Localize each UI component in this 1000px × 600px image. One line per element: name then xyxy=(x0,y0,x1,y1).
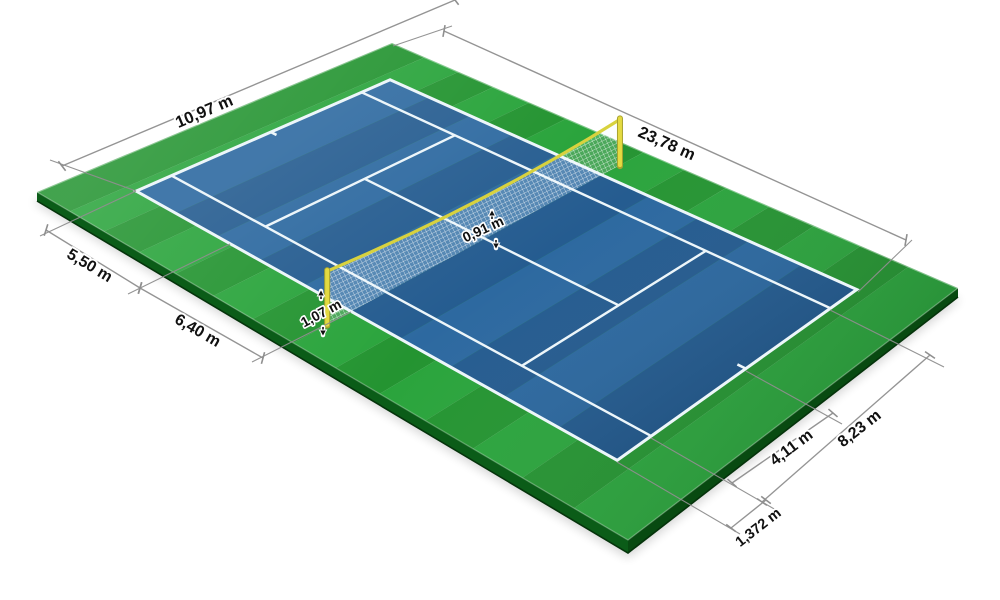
label-singles-court-width: 8,23 m xyxy=(835,407,885,451)
label-doubles-alley-width: 1,372 m xyxy=(733,505,785,550)
court-diagram-canvas: 10,97 m 23,78 m 5,50 m 6,40 m 4,11 m 8,2… xyxy=(0,0,1000,600)
label-baseline-to-service-line: 5,50 m xyxy=(64,246,115,286)
tennis-court-dimensions-diagram: 10,97 m 23,78 m 5,50 m 6,40 m 4,11 m 8,2… xyxy=(0,0,1000,600)
label-service-line-to-net: 6,40 m xyxy=(172,311,224,351)
